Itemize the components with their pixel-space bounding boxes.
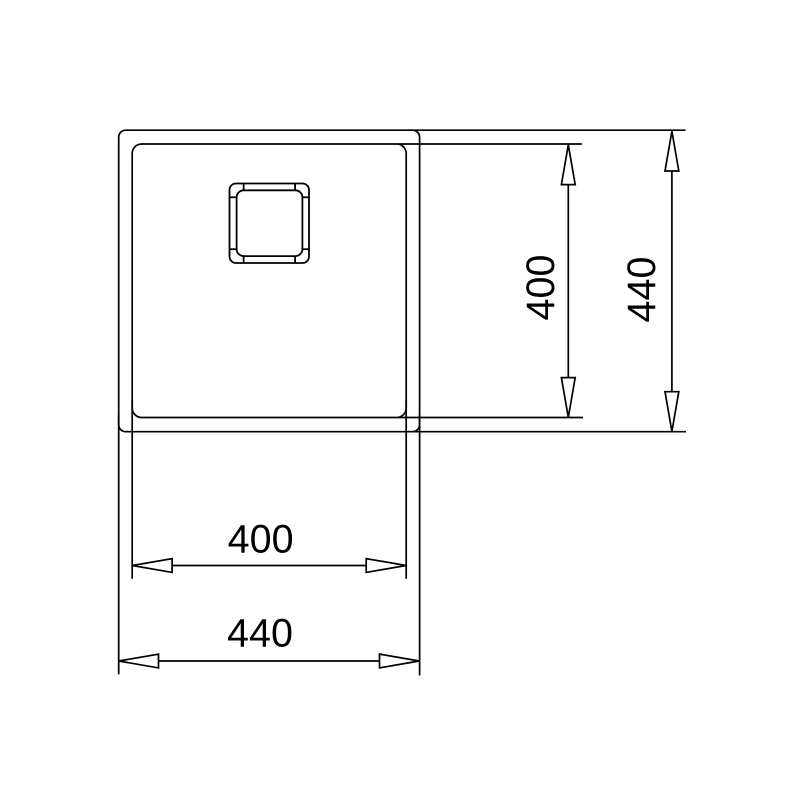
svg-text:440: 440: [227, 612, 293, 656]
svg-text:400: 400: [228, 518, 294, 562]
svg-text:440: 440: [620, 257, 664, 323]
svg-text:400: 400: [519, 255, 563, 321]
